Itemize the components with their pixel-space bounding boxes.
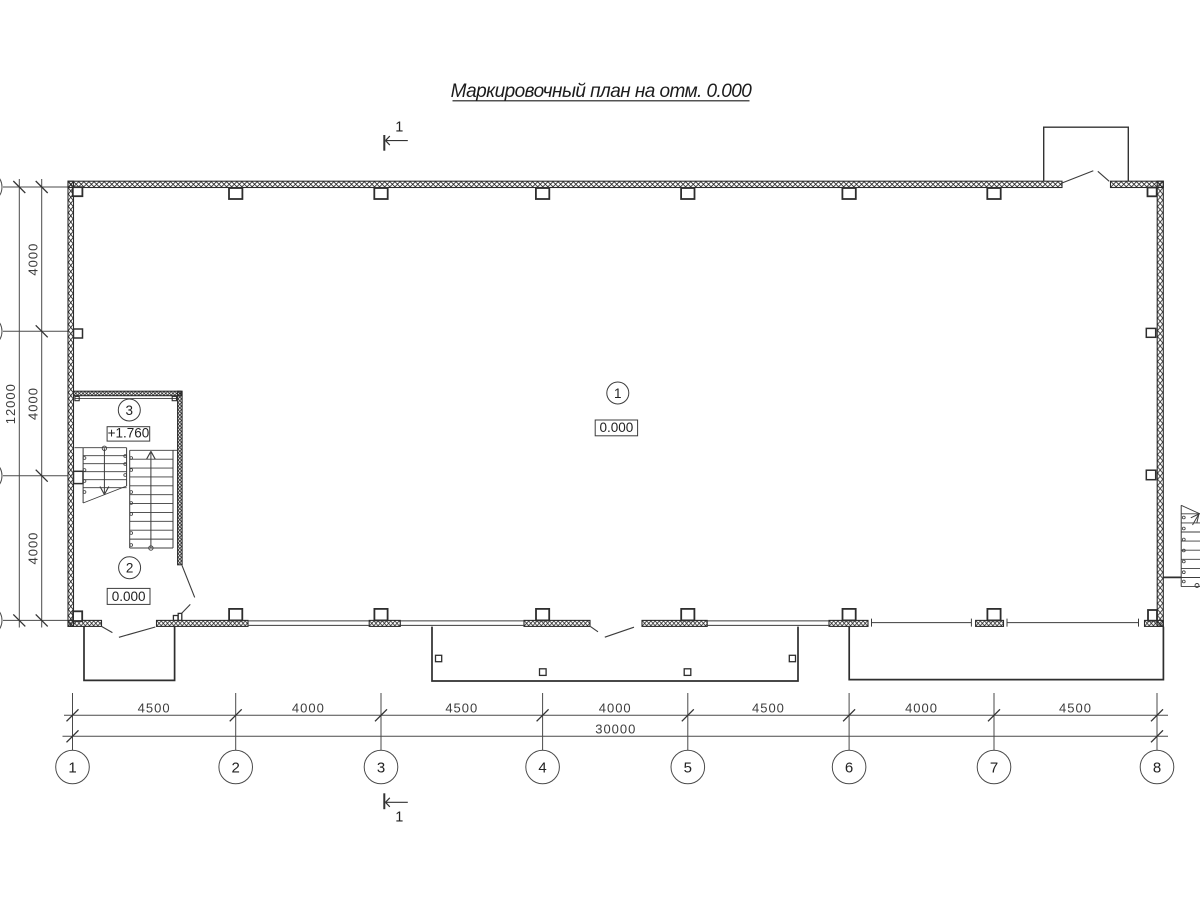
svg-text:4000: 4000 [26, 243, 41, 276]
svg-text:7: 7 [990, 759, 998, 776]
svg-text:1: 1 [614, 386, 622, 401]
svg-text:3: 3 [377, 759, 385, 776]
svg-text:4000: 4000 [292, 700, 325, 715]
svg-text:4500: 4500 [752, 700, 785, 715]
svg-text:8: 8 [1153, 759, 1161, 776]
svg-text:2: 2 [126, 561, 134, 576]
svg-text:2: 2 [232, 759, 240, 776]
svg-text:4000: 4000 [599, 700, 632, 715]
svg-text:4: 4 [538, 759, 546, 776]
svg-text:4500: 4500 [1059, 700, 1092, 715]
svg-text:4000: 4000 [26, 532, 41, 565]
svg-text:4500: 4500 [445, 700, 478, 715]
svg-text:1: 1 [395, 120, 403, 136]
svg-text:6: 6 [845, 759, 853, 776]
svg-text:12000: 12000 [3, 383, 18, 424]
svg-text:0.000: 0.000 [112, 589, 146, 604]
svg-text:30000: 30000 [595, 722, 636, 737]
svg-text:3: 3 [126, 403, 134, 418]
svg-text:4000: 4000 [26, 387, 41, 420]
svg-text:1: 1 [395, 810, 403, 826]
svg-text:Маркировочный план на отм. 0.0: Маркировочный план на отм. 0.000 [451, 81, 753, 102]
svg-text:4000: 4000 [905, 700, 938, 715]
svg-text:1: 1 [68, 759, 76, 776]
svg-text:+1.760: +1.760 [108, 426, 150, 441]
svg-text:5: 5 [684, 759, 692, 776]
svg-text:4500: 4500 [138, 700, 171, 715]
svg-text:0.000: 0.000 [600, 420, 634, 435]
